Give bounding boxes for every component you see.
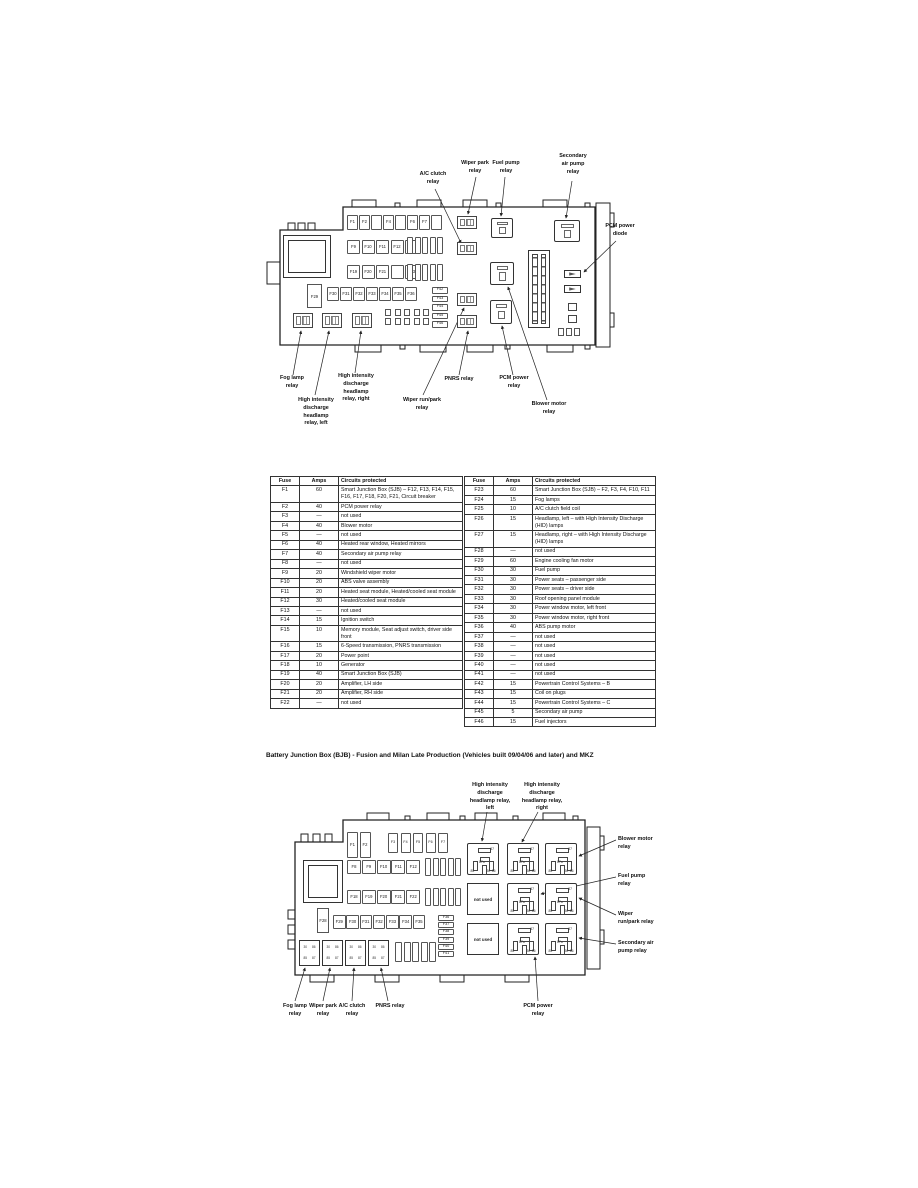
cell-amps: 40 bbox=[300, 540, 339, 549]
table-row: F3 — not used bbox=[271, 512, 463, 521]
fuse-cell: F11 bbox=[391, 860, 405, 874]
cell-amps: 40 bbox=[494, 623, 533, 632]
cell-circuits: ABS valve assembly bbox=[339, 578, 463, 587]
cell-circuits: Smart Junction Box (SJB) – F2, F3, F4, F… bbox=[533, 486, 656, 495]
hid-headlamp-relay-right: 8787a 858630 bbox=[507, 843, 539, 875]
cell-amps: 30 bbox=[494, 566, 533, 575]
table-row: F21 20 Amplifier, RH side bbox=[271, 689, 463, 698]
cell-fuse: F43 bbox=[465, 689, 494, 698]
cell-fuse: F28 bbox=[465, 547, 494, 556]
pcm-power-diode bbox=[564, 270, 581, 278]
cell-amps: 15 bbox=[494, 514, 533, 530]
section-title: Battery Junction Box (BJB) - Fusion and … bbox=[266, 752, 594, 759]
table-row: F35 30 Power window motor, right front bbox=[465, 613, 656, 622]
table-row: F25 10 A/C clutch field coil bbox=[465, 505, 656, 514]
fuse-cell: F38 bbox=[438, 929, 454, 935]
cell-fuse: F33 bbox=[465, 594, 494, 603]
table-row: F19 40 Smart Junction Box (SJB) bbox=[271, 670, 463, 679]
fuse-cell: F9 bbox=[347, 240, 360, 254]
fuse-column: F36F37F38F39F40F41 bbox=[438, 915, 454, 957]
callout-ac-clutch-relay: A/C clutch relay bbox=[337, 1003, 367, 1019]
callout-pcm-power-relay: PCM power relay bbox=[520, 1003, 556, 1019]
cell-fuse: F2 bbox=[271, 502, 300, 511]
cell-amps: 30 bbox=[494, 575, 533, 584]
cell-fuse: F46 bbox=[465, 718, 494, 727]
table-header-row: Fuse Amps Circuits protected bbox=[465, 477, 656, 486]
bjb-early-production-diagram: F1F2F4F6F7 F9F10F11F12 F19F20F21F23 F29 … bbox=[255, 145, 665, 445]
cell-fuse: F17 bbox=[271, 651, 300, 660]
table-row: F22 — not used bbox=[271, 699, 463, 708]
cell-amps: 30 bbox=[494, 594, 533, 603]
cell-amps: 60 bbox=[494, 557, 533, 566]
cell-circuits: not used bbox=[339, 531, 463, 540]
cell-circuits: Blower motor bbox=[339, 521, 463, 530]
fog-lamp-relay bbox=[293, 313, 313, 328]
cell-fuse: F8 bbox=[271, 559, 300, 568]
cell-circuits: Fog lamps bbox=[533, 495, 656, 504]
fuse-cell: F22 bbox=[406, 890, 420, 904]
cell-amps: — bbox=[300, 559, 339, 568]
fuse-cell: F6 bbox=[426, 833, 436, 853]
table-row: F20 20 Amplifier, LH side bbox=[271, 680, 463, 689]
callout-hid-relay-right: High intensity discharge headlamp relay,… bbox=[336, 373, 376, 404]
table-row: F44 15 Powertrain Control Systems – C bbox=[465, 699, 656, 708]
cell-circuits: Heated rear window, Heated mirrors bbox=[339, 540, 463, 549]
table-row: F17 20 Power point bbox=[271, 651, 463, 660]
fuse-cell: F30 bbox=[327, 287, 339, 301]
cell-amps: — bbox=[494, 642, 533, 651]
cell-circuits: not used bbox=[339, 699, 463, 708]
wiper-runpark-relay: 8787a 858630 bbox=[545, 883, 577, 915]
callout-hid-relay-left: High intensity discharge headlamp relay,… bbox=[296, 397, 336, 428]
table-row: F39 — not used bbox=[465, 651, 656, 660]
table-row: F28 — not used bbox=[465, 547, 656, 556]
fuse-cell: F1 bbox=[347, 832, 358, 858]
col-header-fuse: Fuse bbox=[271, 477, 300, 486]
cell-fuse: F15 bbox=[271, 625, 300, 641]
callout-fog-lamp-relay: Fog lamp relay bbox=[280, 1003, 310, 1019]
cell-circuits: Powertrain Control Systems – B bbox=[533, 680, 656, 689]
fuse-cell: F10 bbox=[377, 860, 391, 874]
manual-page: { "title": "Battery Junction Box (BJB) -… bbox=[0, 0, 918, 1188]
cell-amps: 60 bbox=[300, 486, 339, 502]
cell-fuse: F31 bbox=[465, 575, 494, 584]
table-row: F6 40 Heated rear window, Heated mirrors bbox=[271, 540, 463, 549]
mini-fuse-cluster bbox=[425, 858, 461, 876]
table-row: F38 — not used bbox=[465, 642, 656, 651]
cell-circuits: not used bbox=[533, 642, 656, 651]
spare-terminal-row bbox=[385, 309, 429, 316]
fuse-cell bbox=[431, 215, 442, 230]
fuse-cell: F20 bbox=[362, 265, 375, 279]
cell-fuse: F21 bbox=[271, 689, 300, 698]
fuse-cell: F4 bbox=[401, 833, 411, 853]
table-row: F14 15 Ignition switch bbox=[271, 616, 463, 625]
callout-pnrs-relay: PNRS relay bbox=[439, 376, 479, 384]
cell-amps: 15 bbox=[494, 689, 533, 698]
cell-amps: 20 bbox=[300, 680, 339, 689]
blower-motor-relay bbox=[490, 262, 514, 285]
cell-amps: 40 bbox=[300, 502, 339, 511]
cell-fuse: F29 bbox=[465, 557, 494, 566]
callout-wiper-park-relay: Wiper park relay bbox=[308, 1003, 338, 1019]
fuse-table-left: Fuse Amps Circuits protected F1 60 Smart… bbox=[270, 476, 463, 709]
cell-amps: 30 bbox=[300, 597, 339, 606]
callout-fog-lamp-relay: Fog lamp relay bbox=[277, 375, 307, 391]
fuse-cell: F12 bbox=[406, 860, 420, 874]
fuse-cell bbox=[395, 215, 406, 230]
callout-pnrs-relay: PNRS relay bbox=[370, 1003, 410, 1011]
callout-fuel-pump-relay: Fuel pump relay bbox=[618, 873, 658, 889]
fuse-row-4: F30F31F32F33F34F35F36 bbox=[327, 287, 417, 301]
cell-amps: — bbox=[300, 606, 339, 615]
cell-fuse: F39 bbox=[465, 651, 494, 660]
cell-fuse: F42 bbox=[465, 680, 494, 689]
cell-amps: — bbox=[494, 670, 533, 679]
not-used-slot: not used bbox=[467, 923, 499, 955]
cell-circuits: Memory module, Seat adjust switch, drive… bbox=[339, 625, 463, 641]
fuse-cell: F39 bbox=[438, 937, 454, 943]
fuse-cell: F33 bbox=[386, 915, 399, 929]
fuse-cell: F6 bbox=[407, 215, 418, 230]
cell-fuse: F6 bbox=[271, 540, 300, 549]
secondary-air-pump-relay: 8787a 858630 bbox=[545, 923, 577, 955]
cell-fuse: F16 bbox=[271, 642, 300, 651]
cell-amps: 20 bbox=[300, 588, 339, 597]
fuse-cell: F35 bbox=[413, 915, 426, 929]
cell-amps: 30 bbox=[494, 613, 533, 622]
cell-circuits: PCM power relay bbox=[339, 502, 463, 511]
table-row: F40 — not used bbox=[465, 661, 656, 670]
cell-amps: 20 bbox=[300, 569, 339, 578]
fuse-row-2: F8F9F10F11F12 bbox=[347, 860, 420, 874]
table-row: F36 40 ABS pump motor bbox=[465, 623, 656, 632]
cell-amps: 15 bbox=[300, 642, 339, 651]
cell-fuse: F11 bbox=[271, 588, 300, 597]
table-row: F7 40 Secondary air pump relay bbox=[271, 550, 463, 559]
fuse-cell: F21 bbox=[391, 890, 405, 904]
cell-circuits: Smart Junction Box (SJB) – F12, F13, F14… bbox=[339, 486, 463, 502]
hid-headlamp-relay-left bbox=[322, 313, 342, 328]
fuse-cell: F34 bbox=[399, 915, 412, 929]
table-row: F31 30 Power seats – passenger side bbox=[465, 575, 656, 584]
fuse-cell bbox=[391, 265, 404, 279]
fuse-cell: F9 bbox=[362, 860, 376, 874]
fuse-cell: F2 bbox=[359, 215, 370, 230]
fuse-column: F42F43F44F45F46 bbox=[432, 287, 448, 328]
wiper-park-relay: 30868587 bbox=[322, 940, 343, 966]
fuse-cell: F20 bbox=[377, 890, 391, 904]
cell-circuits: Power window motor, left front bbox=[533, 604, 656, 613]
wiper-park-relay bbox=[457, 216, 477, 229]
hid-headlamp-relay-left: 8787a 858630 bbox=[467, 843, 499, 875]
table-row: F33 30 Roof opening panel module bbox=[465, 594, 656, 603]
callout-hid-relay-right: High intensity discharge headlamp relay,… bbox=[520, 782, 564, 813]
cell-circuits: Headlamp, right – with High Intensity Di… bbox=[533, 531, 656, 547]
cell-circuits: Coil on plugs bbox=[533, 689, 656, 698]
spare-socket bbox=[568, 315, 577, 323]
col-header-amps: Amps bbox=[300, 477, 339, 486]
table-row: F26 15 Headlamp, left – with High Intens… bbox=[465, 514, 656, 530]
cell-fuse: F4 bbox=[271, 521, 300, 530]
pnrs-relay: 30868587 bbox=[368, 940, 389, 966]
fuse-cell: F32 bbox=[373, 915, 386, 929]
callout-fuel-pump-relay: Fuel pump relay bbox=[491, 160, 521, 176]
cell-circuits: ABS pump motor bbox=[533, 623, 656, 632]
cell-fuse: F32 bbox=[465, 585, 494, 594]
cell-amps: 5 bbox=[494, 708, 533, 717]
fuse-cell: F1 bbox=[347, 215, 358, 230]
fuse-cell: F31 bbox=[340, 287, 352, 301]
cell-fuse: F1 bbox=[271, 486, 300, 502]
cell-circuits: Generator bbox=[339, 661, 463, 670]
col-header-fuse: Fuse bbox=[465, 477, 494, 486]
fuse-cell: F5 bbox=[413, 833, 423, 853]
table-row: F29 60 Engine cooling fan motor bbox=[465, 557, 656, 566]
cell-circuits: Fuel injectors bbox=[533, 718, 656, 727]
pnrs-relay bbox=[457, 315, 477, 328]
cell-fuse: F14 bbox=[271, 616, 300, 625]
cell-fuse: F27 bbox=[465, 531, 494, 547]
cell-fuse: F30 bbox=[465, 566, 494, 575]
fuse-row-1: F1F2F4F6F7 bbox=[347, 215, 442, 230]
cell-fuse: F45 bbox=[465, 708, 494, 717]
cell-fuse: F40 bbox=[465, 661, 494, 670]
fuse-cell: F37 bbox=[438, 922, 454, 928]
fuse-cell: F11 bbox=[376, 240, 389, 254]
callout-wiper-runpark-relay: Wiper run/park relay bbox=[400, 397, 444, 413]
cell-circuits: Power point bbox=[339, 651, 463, 660]
cell-fuse: F24 bbox=[465, 495, 494, 504]
cell-amps: — bbox=[494, 547, 533, 556]
fuse-cell bbox=[371, 215, 382, 230]
fog-lamp-relay: 30868587 bbox=[299, 940, 320, 966]
cell-circuits: Secondary air pump relay bbox=[339, 550, 463, 559]
callout-wiper-runpark-relay: Wiper run/park relay bbox=[618, 911, 654, 927]
cell-circuits: Power window motor, right front bbox=[533, 613, 656, 622]
cell-circuits: Fuel pump bbox=[533, 566, 656, 575]
col-header-circuits: Circuits protected bbox=[339, 477, 463, 486]
cell-circuits: Smart Junction Box (SJB) bbox=[339, 670, 463, 679]
diode bbox=[564, 285, 581, 293]
fuse-cell: F45 bbox=[432, 313, 448, 320]
cell-amps: — bbox=[300, 531, 339, 540]
cell-fuse: F9 bbox=[271, 569, 300, 578]
cell-circuits: not used bbox=[339, 559, 463, 568]
fuse-cell: F12 bbox=[391, 240, 404, 254]
cell-fuse: F5 bbox=[271, 531, 300, 540]
cell-amps: 40 bbox=[300, 550, 339, 559]
table-row: F18 10 Generator bbox=[271, 661, 463, 670]
fuse-table-right: Fuse Amps Circuits protected F23 60 Smar… bbox=[464, 476, 656, 727]
fuse-cell: F7 bbox=[438, 833, 448, 853]
table-row: F12 30 Heated/cooled seat module bbox=[271, 597, 463, 606]
mini-fuse-cluster bbox=[407, 264, 443, 281]
callout-pcm-power-relay: PCM power relay bbox=[496, 375, 532, 391]
cell-circuits: Power seats – passenger side bbox=[533, 575, 656, 584]
mini-fuse-cluster bbox=[395, 942, 436, 962]
fuse-cell: F32 bbox=[353, 287, 365, 301]
cell-amps: 15 bbox=[494, 495, 533, 504]
cell-amps: — bbox=[300, 699, 339, 708]
connector-strip bbox=[528, 250, 550, 328]
mini-fuse-cluster bbox=[407, 237, 443, 254]
cell-circuits: Power seats – driver side bbox=[533, 585, 656, 594]
fuse-row-4: F29F30F31F32F33F34F35 bbox=[333, 915, 425, 929]
cell-circuits: Engine cooling fan motor bbox=[533, 557, 656, 566]
fuse-cell: F46 bbox=[432, 321, 448, 328]
not-used-slot: not used bbox=[467, 883, 499, 915]
fuse-cell: F36 bbox=[405, 287, 417, 301]
table-row: F13 — not used bbox=[271, 606, 463, 615]
cell-amps: — bbox=[494, 632, 533, 641]
cell-amps: 10 bbox=[300, 661, 339, 670]
cell-fuse: F19 bbox=[271, 670, 300, 679]
cell-amps: 20 bbox=[300, 651, 339, 660]
cell-fuse: F22 bbox=[271, 699, 300, 708]
table-row: F46 15 Fuel injectors bbox=[465, 718, 656, 727]
cell-amps: 15 bbox=[494, 531, 533, 547]
cell-circuits: not used bbox=[533, 670, 656, 679]
cell-circuits: Heated/cooled seat module bbox=[339, 597, 463, 606]
pcm-power-relay bbox=[490, 300, 512, 324]
cell-circuits: Amplifier, RH side bbox=[339, 689, 463, 698]
cell-circuits: not used bbox=[533, 632, 656, 641]
fuse-cell: F43 bbox=[432, 296, 448, 303]
fuse-cell: F33 bbox=[366, 287, 378, 301]
table-header-row: Fuse Amps Circuits protected bbox=[271, 477, 463, 486]
cell-fuse: F13 bbox=[271, 606, 300, 615]
callout-pcm-power-diode: PCM power diode bbox=[603, 223, 637, 239]
blower-motor-relay: 8787a 858630 bbox=[545, 843, 577, 875]
cell-amps: 40 bbox=[300, 521, 339, 530]
table-row: F4 40 Blower motor bbox=[271, 521, 463, 530]
cell-circuits: Headlamp, left – with High Intensity Dis… bbox=[533, 514, 656, 530]
junction-block bbox=[283, 235, 331, 278]
fuse-cell: F21 bbox=[376, 265, 389, 279]
cell-amps: 30 bbox=[494, 604, 533, 613]
cell-fuse: F41 bbox=[465, 670, 494, 679]
bjb-late-production-diagram: F1F2 F3F4F5F6F7 F8F9F10F11F12 F18F19F20F… bbox=[255, 770, 675, 1030]
cell-fuse: F10 bbox=[271, 578, 300, 587]
table-row: F10 20 ABS valve assembly bbox=[271, 578, 463, 587]
cell-circuits: not used bbox=[533, 547, 656, 556]
secondary-air-pump-relay bbox=[554, 220, 580, 242]
cell-amps: — bbox=[494, 651, 533, 660]
cell-circuits: not used bbox=[339, 606, 463, 615]
table-row: F37 — not used bbox=[465, 632, 656, 641]
fuse-cell: F36 bbox=[438, 915, 454, 921]
fuse-cell: F35 bbox=[392, 287, 404, 301]
table-row: F34 30 Power window motor, left front bbox=[465, 604, 656, 613]
cell-amps: — bbox=[494, 661, 533, 670]
cell-amps: 20 bbox=[300, 578, 339, 587]
spare-terminal-row bbox=[558, 328, 580, 336]
fuel-pump-relay bbox=[491, 218, 513, 238]
cell-amps: 10 bbox=[494, 505, 533, 514]
col-header-amps: Amps bbox=[494, 477, 533, 486]
fuse-cell: F8 bbox=[347, 860, 361, 874]
callout-secondary-air-pump-relay: Secondary air pump relay bbox=[618, 940, 662, 956]
table-row: F23 60 Smart Junction Box (SJB) – F2, F3… bbox=[465, 486, 656, 495]
cell-circuits: Powertrain Control Systems – C bbox=[533, 699, 656, 708]
cell-amps: 15 bbox=[494, 680, 533, 689]
cell-amps: — bbox=[300, 512, 339, 521]
table-row: F42 15 Powertrain Control Systems – B bbox=[465, 680, 656, 689]
pcm-power-relay: 8787a 858630 bbox=[507, 923, 539, 955]
cell-amps: 10 bbox=[300, 625, 339, 641]
table-row: F15 10 Memory module, Seat adjust switch… bbox=[271, 625, 463, 641]
fuse-cell: F40 bbox=[438, 944, 454, 950]
cell-fuse: F20 bbox=[271, 680, 300, 689]
fuse-cell: F34 bbox=[379, 287, 391, 301]
callout-wiper-park-relay: Wiper park relay bbox=[458, 160, 492, 176]
cell-circuits: 6-Speed transmission, PNRS transmission bbox=[339, 642, 463, 651]
cell-circuits: Roof opening panel module bbox=[533, 594, 656, 603]
table-row: F45 5 Secondary air pump bbox=[465, 708, 656, 717]
table-row: F16 15 6-Speed transmission, PNRS transm… bbox=[271, 642, 463, 651]
hid-headlamp-relay-right bbox=[352, 313, 372, 328]
cell-fuse: F7 bbox=[271, 550, 300, 559]
callout-ac-clutch-relay: A/C clutch relay bbox=[416, 171, 450, 187]
cell-fuse: F34 bbox=[465, 604, 494, 613]
cell-circuits: Windshield wiper motor bbox=[339, 569, 463, 578]
table-row: F11 20 Heated seat module, Heated/cooled… bbox=[271, 588, 463, 597]
cell-fuse: F37 bbox=[465, 632, 494, 641]
table-row: F2 40 PCM power relay bbox=[271, 502, 463, 511]
fuse-cell: F19 bbox=[347, 265, 360, 279]
cell-fuse: F44 bbox=[465, 699, 494, 708]
fuse-row-vertical: F3F4F5F6F7 bbox=[388, 833, 448, 853]
cell-circuits: Amplifier, LH side bbox=[339, 680, 463, 689]
table-row: F1 60 Smart Junction Box (SJB) – F12, F1… bbox=[271, 486, 463, 502]
fuse-row-tall: F1F2 bbox=[347, 832, 371, 858]
table-row: F24 15 Fog lamps bbox=[465, 495, 656, 504]
ac-clutch-relay bbox=[457, 242, 477, 255]
cell-amps: 60 bbox=[494, 486, 533, 495]
spare-socket bbox=[568, 303, 577, 311]
fuse-cell-big: F28 bbox=[317, 908, 329, 933]
table-row: F32 30 Power seats – driver side bbox=[465, 585, 656, 594]
cell-amps: 20 bbox=[300, 689, 339, 698]
cell-amps: 30 bbox=[494, 585, 533, 594]
cell-fuse: F18 bbox=[271, 661, 300, 670]
table-row: F9 20 Windshield wiper motor bbox=[271, 569, 463, 578]
cell-fuse: F23 bbox=[465, 486, 494, 495]
fuse-cell: F7 bbox=[419, 215, 430, 230]
callout-hid-relay-left: High intensity discharge headlamp relay,… bbox=[468, 782, 512, 813]
cell-fuse: F36 bbox=[465, 623, 494, 632]
fuse-cell: F2 bbox=[360, 832, 371, 858]
fuse-cell: F42 bbox=[432, 287, 448, 294]
cell-fuse: F38 bbox=[465, 642, 494, 651]
cell-amps: 15 bbox=[300, 616, 339, 625]
cell-circuits: not used bbox=[339, 512, 463, 521]
cell-circuits: not used bbox=[533, 651, 656, 660]
fuse-cell: F41 bbox=[438, 951, 454, 957]
cell-circuits: not used bbox=[533, 661, 656, 670]
wiper-runpark-relay bbox=[457, 293, 477, 306]
cell-amps: 15 bbox=[494, 718, 533, 727]
callout-blower-motor-relay: Blower motor relay bbox=[618, 836, 662, 852]
fuse-cell: F30 bbox=[346, 915, 359, 929]
table-row: F30 30 Fuel pump bbox=[465, 566, 656, 575]
spare-terminal-row bbox=[385, 318, 429, 325]
fuse-cell: F29 bbox=[333, 915, 346, 929]
cell-fuse: F12 bbox=[271, 597, 300, 606]
fuse-cell: F44 bbox=[432, 304, 448, 311]
fuse-cell: F31 bbox=[360, 915, 373, 929]
